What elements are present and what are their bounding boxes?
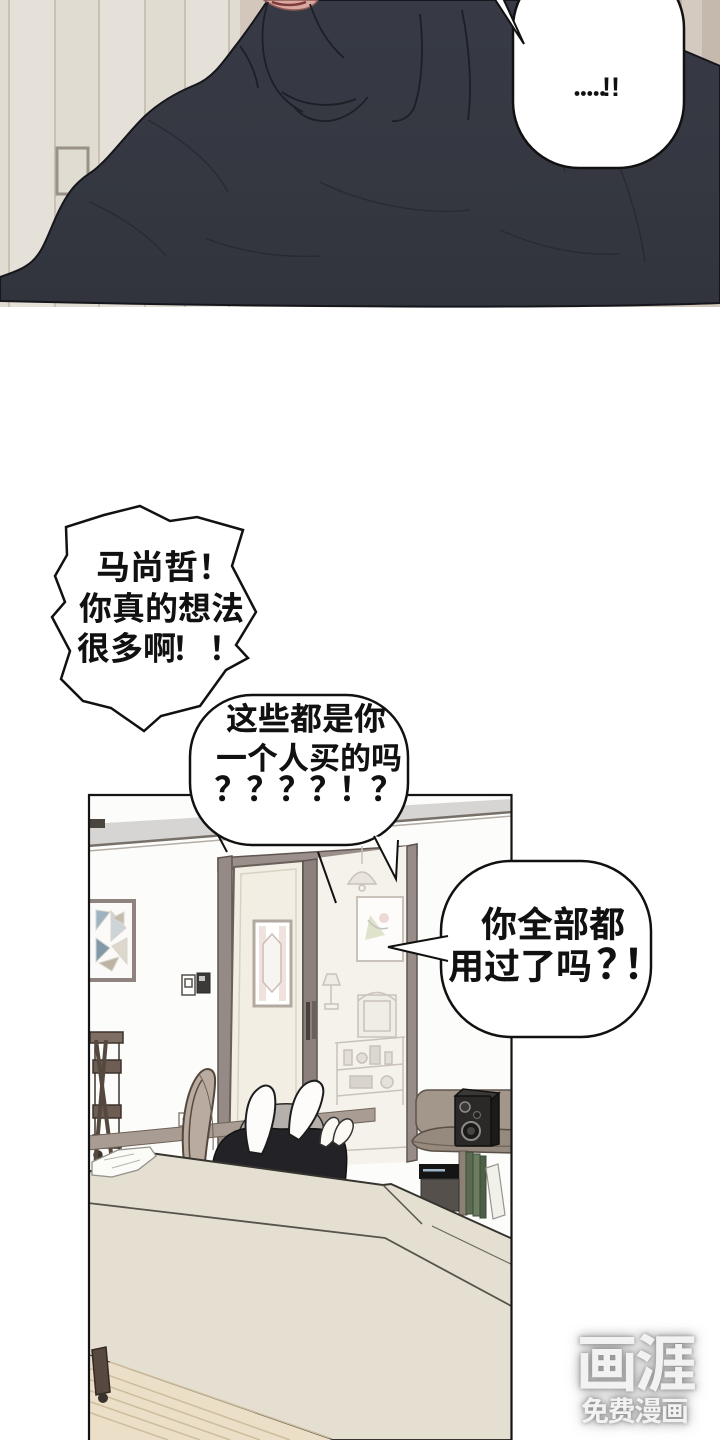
svg-text:!!: !!	[602, 72, 620, 102]
